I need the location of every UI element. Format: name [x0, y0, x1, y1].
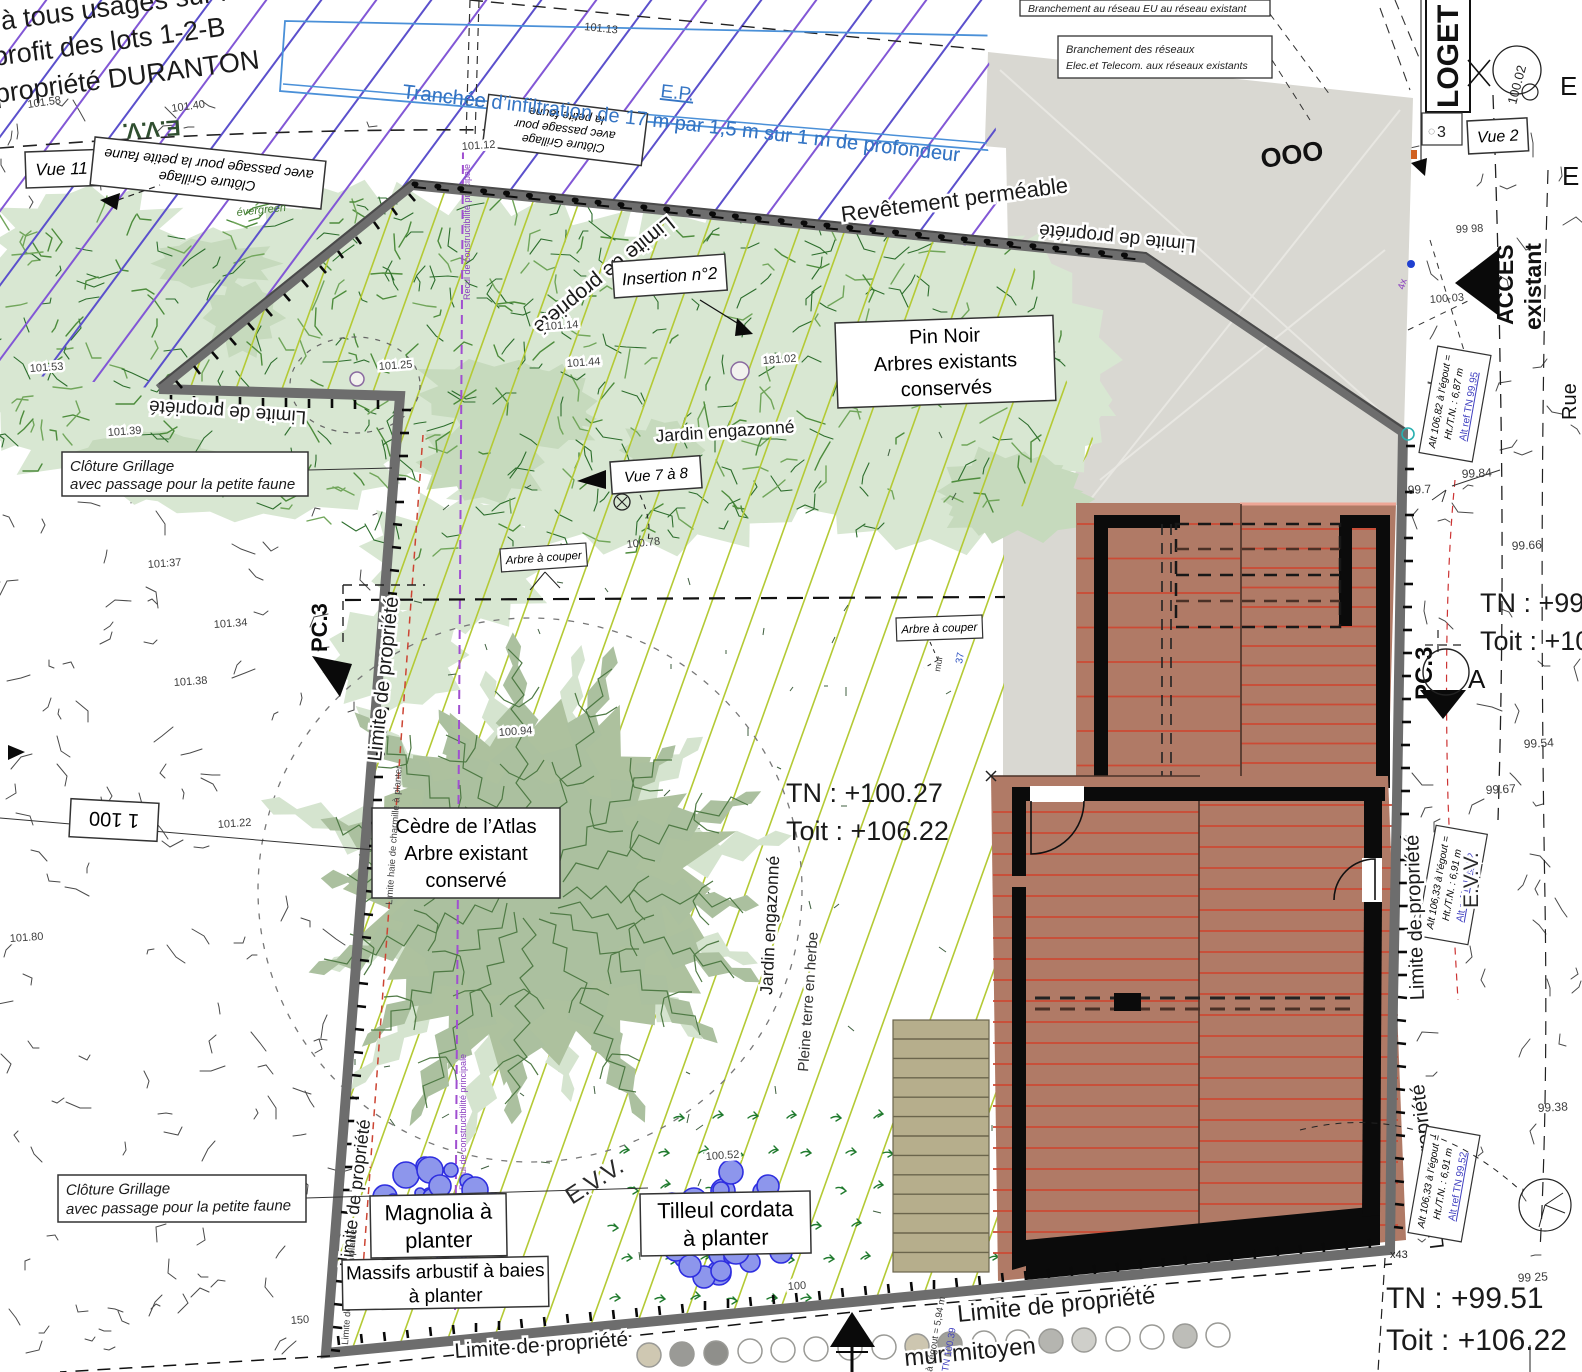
svg-text:PC.3: PC.3 — [307, 603, 332, 652]
svg-text:99.7: 99.7 — [1407, 482, 1431, 497]
svg-text:TN : +99.: TN : +99. — [1480, 588, 1582, 618]
svg-text:1 100: 1 100 — [88, 807, 139, 832]
svg-text:99.67: 99.67 — [1485, 781, 1516, 797]
svg-text:planter: planter — [405, 1227, 473, 1253]
svg-text:Rue: Rue — [1559, 383, 1581, 420]
svg-text:100.52: 100.52 — [705, 1149, 739, 1163]
svg-text:3: 3 — [1437, 124, 1446, 141]
svg-text:99.84: 99.84 — [1461, 465, 1492, 481]
svg-text:x43: x43 — [1390, 1249, 1408, 1261]
svg-text:Branchement au réseau EU au ré: Branchement au réseau EU au réseau exist… — [1028, 3, 1247, 15]
svg-text:Magnolia à: Magnolia à — [384, 1199, 493, 1226]
svg-text:101.12: 101.12 — [461, 139, 495, 153]
svg-text:existant: existant — [1520, 243, 1546, 330]
svg-text:à planter: à planter — [408, 1285, 483, 1307]
svg-text:Vue 2: Vue 2 — [1477, 127, 1519, 146]
svg-text:TN : +100.27: TN : +100.27 — [786, 778, 943, 808]
svg-text:Cèdre de l’Atlas: Cèdre de l’Atlas — [395, 816, 536, 838]
svg-text:Massifs arbustif à baies: Massifs arbustif à baies — [346, 1260, 545, 1284]
svg-text:100.94: 100.94 — [498, 725, 532, 739]
svg-text:101.53: 101.53 — [29, 361, 63, 375]
svg-text:101.34: 101.34 — [213, 617, 247, 631]
svg-text:E: E — [1560, 71, 1577, 101]
svg-text:101.38: 101.38 — [173, 675, 207, 689]
svg-text:A: A — [1468, 664, 1486, 694]
svg-text:avec passage pour la petite fa: avec passage pour la petite faune — [70, 476, 295, 493]
svg-text:101.44: 101.44 — [566, 356, 600, 370]
svg-text:181.02: 181.02 — [762, 353, 796, 367]
svg-text:99.66: 99.66 — [1511, 537, 1542, 553]
svg-text:Toit : +106.22: Toit : +106.22 — [1386, 1324, 1567, 1357]
svg-text:Toit : +10: Toit : +10 — [1480, 626, 1582, 656]
svg-text:Recul de constructibilité prin: Recul de constructibilité principale — [458, 1054, 468, 1190]
svg-text:99.38: 99.38 — [1537, 1099, 1568, 1115]
svg-text:E.P.: E.P. — [659, 81, 695, 106]
svg-text:99.54: 99.54 — [1523, 735, 1554, 751]
svg-text:101.14: 101.14 — [544, 319, 578, 333]
svg-text:Elec.et Telecom. aux réseaux e: Elec.et Telecom. aux réseaux existants — [1066, 60, 1248, 72]
svg-text:E: E — [1562, 161, 1579, 191]
svg-text:101.25: 101.25 — [378, 359, 412, 373]
svg-text:Toit : +106.22: Toit : +106.22 — [786, 816, 949, 846]
svg-text:101.22: 101.22 — [217, 817, 251, 831]
svg-text:Branchement des réseaux: Branchement des réseaux — [1066, 44, 1195, 56]
svg-text:conservés: conservés — [900, 376, 992, 401]
svg-text:E.V.V.: E.V.V. — [1460, 852, 1483, 908]
svg-text:99 98: 99 98 — [1456, 223, 1484, 236]
svg-text:101:37: 101:37 — [147, 557, 181, 571]
svg-text:Clôture Grillage: Clôture Grillage — [70, 458, 174, 475]
svg-text:Tilleul cordata: Tilleul cordata — [657, 1196, 794, 1223]
svg-text:100: 100 — [787, 1280, 806, 1293]
svg-text:100·03: 100·03 — [1429, 292, 1464, 306]
svg-text:Clôture Grillage: Clôture Grillage — [66, 1180, 170, 1199]
svg-text:150: 150 — [290, 1314, 309, 1327]
svg-text:101.80: 101.80 — [9, 931, 43, 945]
svg-text:LOGET: LOGET — [1432, 5, 1465, 108]
svg-text:conservé: conservé — [425, 870, 506, 892]
svg-text:◌: ◌ — [1428, 124, 1435, 138]
svg-text:Vue 11: Vue 11 — [35, 159, 88, 180]
svg-text:à planter: à planter — [683, 1224, 769, 1250]
svg-text:TN : +99.51: TN : +99.51 — [1386, 1282, 1544, 1315]
svg-text:Pin Noir: Pin Noir — [909, 324, 981, 348]
svg-text:Arbre existant: Arbre existant — [404, 843, 528, 865]
svg-text:101.39: 101.39 — [107, 425, 141, 439]
svg-text:E.V.V.: E.V.V. — [121, 115, 181, 144]
